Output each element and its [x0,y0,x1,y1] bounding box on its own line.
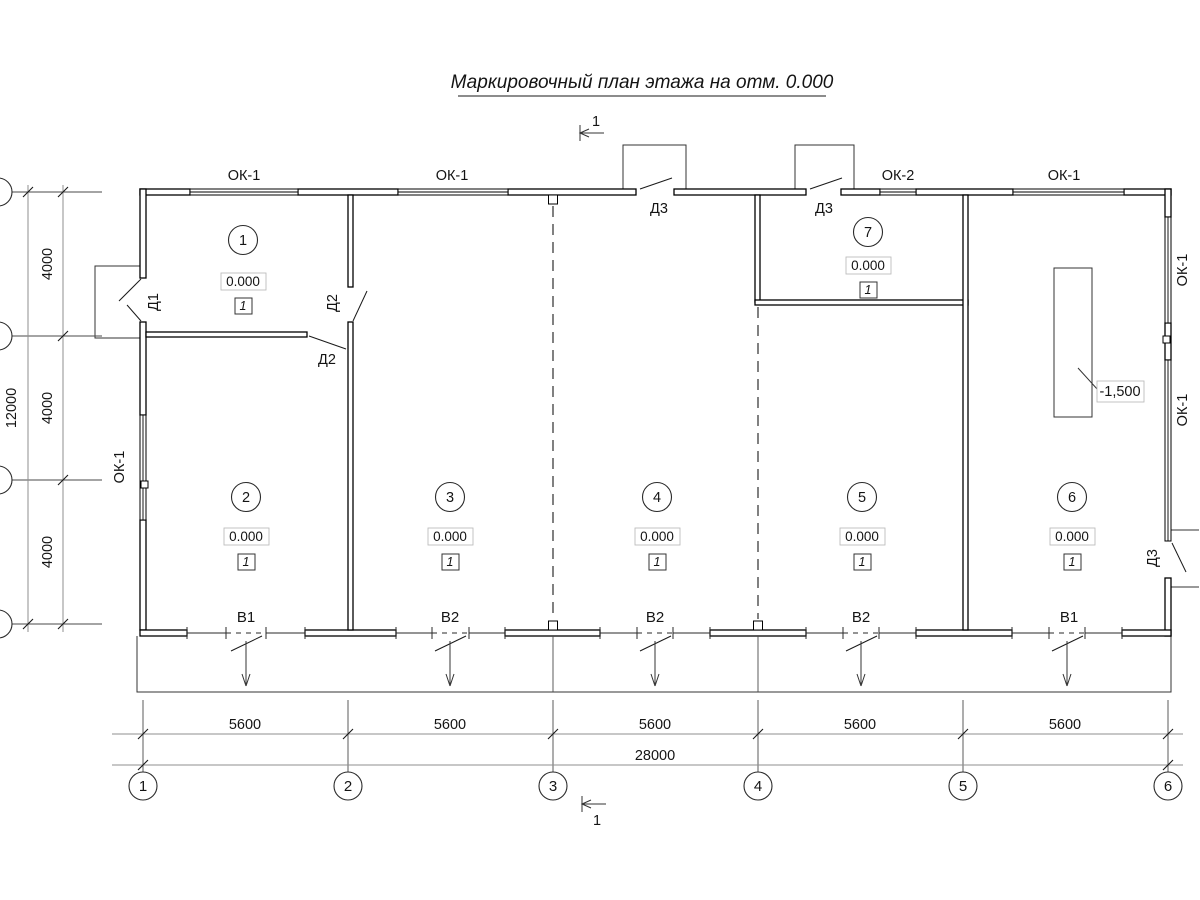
room-2-elevation: 0.000 [229,529,263,544]
window-label-ok1-top2: ОК-1 [436,168,469,184]
door-label-d3-porch2: Д3 [815,201,833,217]
dim-bay-5: 5600 [1049,717,1081,733]
room-3-type: 1 [447,555,454,569]
section-mark-bottom-label: 1 [593,813,601,829]
room-6-elevation: 0.000 [1055,529,1089,544]
dim-total-width: 28000 [635,748,675,764]
room-1-type: 1 [240,299,247,313]
window-label-ok1-right2: ОК-1 [1175,394,1191,427]
axis-label-2: 2 [344,778,352,795]
door-label-d1: Д1 [146,293,162,311]
pit-elevation-label: -1,500 [1099,384,1140,400]
window-label-ok1-top1: ОК-1 [228,168,261,184]
room-4-type: 1 [654,555,661,569]
room-6-number: 6 [1068,490,1076,506]
room-7-number: 7 [864,225,872,241]
dim-bay-4: 5600 [844,717,876,733]
floor-plan-drawing: Маркировочный план этажа на отм. 0.000 1… [0,0,1200,900]
drawing-sheet: Маркировочный план этажа на отм. 0.000 1… [0,0,1200,900]
axis-label-1: 1 [139,778,147,795]
drawing-title: Маркировочный план этажа на отм. 0.000 [451,72,834,93]
vent-label-v2-room5: В2 [852,609,870,626]
vent-label-v2-room4: В2 [646,609,664,626]
room-1-number: 1 [239,233,247,249]
room-2-number: 2 [242,490,250,506]
window-label-ok1-top3: ОК-1 [1048,168,1081,184]
door-label-d2-horizontal: Д2 [318,352,336,368]
room-5-type: 1 [859,555,866,569]
door-label-d2-vertical: Д2 [325,294,341,312]
room-3-number: 3 [446,490,454,506]
door-label-d3-right: Д3 [1145,549,1161,567]
dim-row-2: 4000 [40,392,56,424]
vent-label-v1-room6: В1 [1060,609,1078,626]
room-5-elevation: 0.000 [845,529,879,544]
axis-label-4: 4 [754,778,762,795]
axis-label-5: 5 [959,778,967,795]
section-mark-top-label: 1 [592,114,600,130]
dim-row-total: 12000 [4,388,20,428]
room-7-elevation: 0.000 [851,258,885,273]
dim-bay-2: 5600 [434,717,466,733]
window-label-ok1-right1: ОК-1 [1175,254,1191,287]
room-7-type: 1 [865,283,872,297]
window-label-ok2-top: ОК-2 [882,168,915,184]
room-4-elevation: 0.000 [640,529,674,544]
room-3-elevation: 0.000 [433,529,467,544]
room-5-number: 5 [858,490,866,506]
door-label-d3-porch1: Д3 [650,201,668,217]
axis-label-3: 3 [549,778,557,795]
room-2-type: 1 [243,555,250,569]
dim-row-1: 4000 [40,248,56,280]
vent-label-v1-room2: В1 [237,609,255,626]
window-label-ok1-left: ОК-1 [112,451,128,484]
dim-bay-1: 5600 [229,717,261,733]
room-1-elevation: 0.000 [226,274,260,289]
vent-label-v2-room3: В2 [441,609,459,626]
dim-row-3: 4000 [40,536,56,568]
room-4-number: 4 [653,490,661,506]
dim-bay-3: 5600 [639,717,671,733]
room-6-type: 1 [1069,555,1076,569]
axis-label-6: 6 [1164,778,1172,795]
